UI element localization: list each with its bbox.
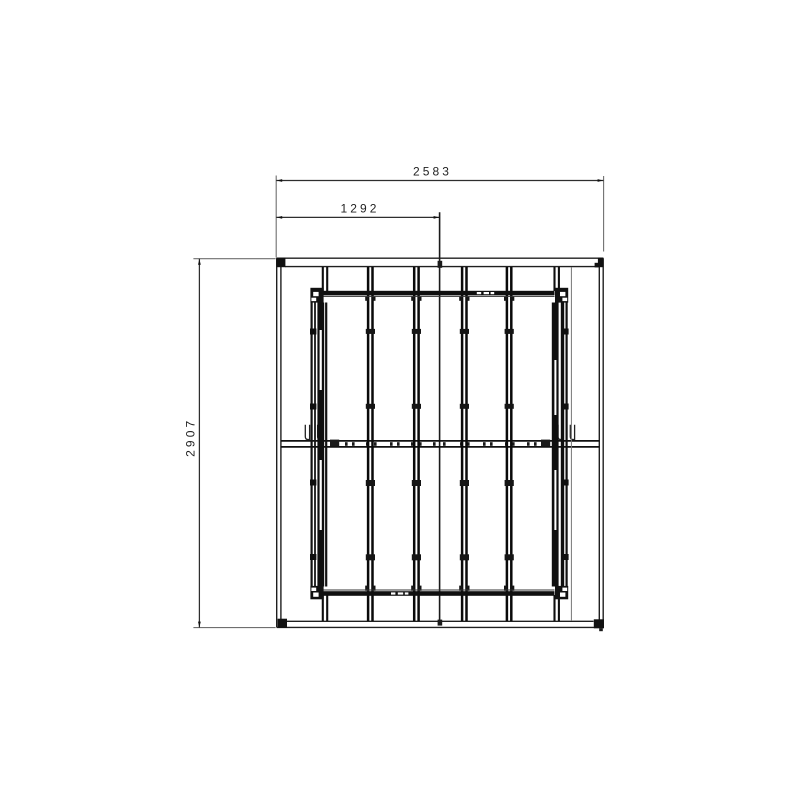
svg-text:2583: 2583 xyxy=(413,164,452,178)
svg-text:1292: 1292 xyxy=(340,202,379,216)
svg-text:2907: 2907 xyxy=(183,418,197,457)
